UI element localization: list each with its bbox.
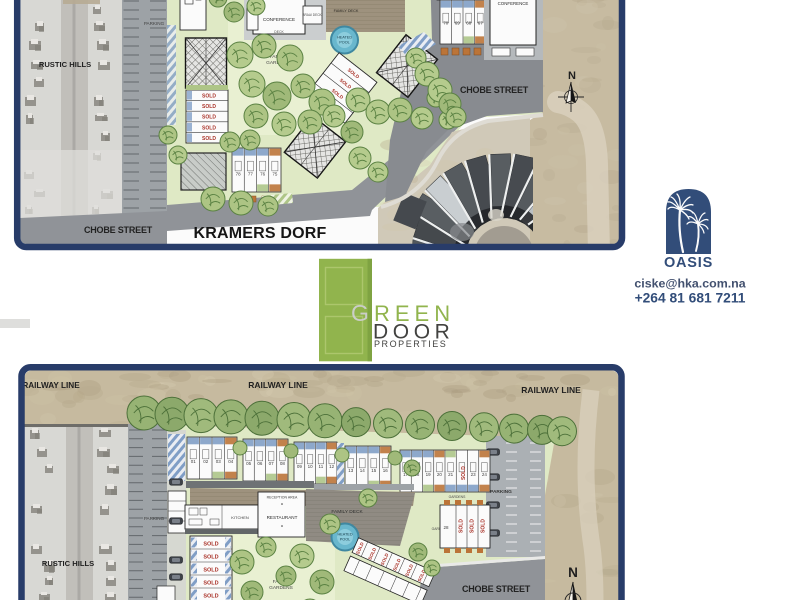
svg-text:CHOBE STREET: CHOBE STREET xyxy=(460,85,529,95)
svg-text:SOLD: SOLD xyxy=(202,115,216,121)
svg-text:21: 21 xyxy=(448,472,454,477)
svg-text:70: 70 xyxy=(443,21,449,26)
svg-text:28: 28 xyxy=(443,525,449,530)
svg-text:PARKING: PARKING xyxy=(144,516,165,521)
svg-text:N: N xyxy=(568,565,578,580)
svg-text:PARKING: PARKING xyxy=(144,21,165,26)
svg-text:08: 08 xyxy=(280,461,286,466)
svg-text:KRAMERS DORF: KRAMERS DORF xyxy=(193,225,326,242)
svg-text:SOLD: SOLD xyxy=(203,555,218,561)
svg-text:SOLD: SOLD xyxy=(203,542,218,548)
svg-text:+264 81 681 7211: +264 81 681 7211 xyxy=(635,291,746,306)
svg-text:24: 24 xyxy=(482,472,488,477)
svg-text:DECK: DECK xyxy=(274,30,284,34)
svg-text:05: 05 xyxy=(246,461,252,466)
svg-text:HEATED: HEATED xyxy=(337,36,352,40)
svg-text:RUSTIC HILLS: RUSTIC HILLS xyxy=(42,559,94,568)
svg-text:12: 12 xyxy=(329,464,335,469)
svg-text:RAILWAY LINE: RAILWAY LINE xyxy=(22,381,80,390)
svg-text:SOLD: SOLD xyxy=(203,594,218,600)
svg-text:BRAAI DECK: BRAAI DECK xyxy=(302,13,322,17)
svg-text:15: 15 xyxy=(371,468,377,473)
svg-text:PROPERTIES: PROPERTIES xyxy=(374,339,447,349)
svg-text:16: 16 xyxy=(383,468,389,473)
svg-text:HEATED: HEATED xyxy=(337,533,352,537)
svg-text:GARDENS: GARDENS xyxy=(449,495,467,499)
svg-text:CONFERENCE: CONFERENCE xyxy=(263,17,295,22)
svg-text:04: 04 xyxy=(228,459,234,464)
svg-text:07: 07 xyxy=(269,461,275,466)
svg-text:67: 67 xyxy=(478,21,484,26)
svg-text:SOLD: SOLD xyxy=(459,519,465,533)
svg-text:68: 68 xyxy=(466,21,472,26)
svg-text:RESTAURANT: RESTAURANT xyxy=(267,515,298,520)
svg-text:11: 11 xyxy=(319,464,324,469)
svg-text:SOLD: SOLD xyxy=(470,519,476,533)
svg-text:20: 20 xyxy=(437,472,443,477)
svg-text:N: N xyxy=(568,70,576,82)
svg-text:10: 10 xyxy=(308,464,314,469)
svg-text:KITCHEN: KITCHEN xyxy=(231,515,249,520)
svg-text:OASIS: OASIS xyxy=(664,255,713,271)
svg-text:FAMILY DECK: FAMILY DECK xyxy=(334,9,359,13)
svg-text:SOLD: SOLD xyxy=(202,125,216,131)
svg-text:SOLD: SOLD xyxy=(203,568,218,574)
svg-text:02: 02 xyxy=(203,459,209,464)
svg-text:23: 23 xyxy=(471,472,477,477)
svg-text:RAILWAY LINE: RAILWAY LINE xyxy=(248,380,308,390)
svg-text:78: 78 xyxy=(236,171,242,176)
svg-text:19: 19 xyxy=(426,472,432,477)
svg-text:FAMILY DECK: FAMILY DECK xyxy=(331,509,363,515)
svg-text:SOLD: SOLD xyxy=(202,136,216,142)
svg-text:01: 01 xyxy=(191,459,197,464)
svg-text:RAILWAY LINE: RAILWAY LINE xyxy=(521,385,581,395)
svg-text:G: G xyxy=(351,300,369,326)
svg-text:03: 03 xyxy=(216,459,222,464)
svg-text:SOLD: SOLD xyxy=(202,94,216,100)
svg-text:14: 14 xyxy=(360,468,366,473)
svg-text:CHOBE STREET: CHOBE STREET xyxy=(462,584,531,594)
svg-text:SOLD: SOLD xyxy=(202,104,216,110)
svg-text:CONFERENCE: CONFERENCE xyxy=(498,1,529,6)
svg-text:13: 13 xyxy=(348,468,354,473)
svg-text:POOL: POOL xyxy=(339,41,350,45)
svg-text:RUSTIC HILLS: RUSTIC HILLS xyxy=(39,60,91,69)
svg-text:PARKING: PARKING xyxy=(490,489,512,495)
svg-text:CHOBE STREET: CHOBE STREET xyxy=(84,225,153,235)
svg-text:09: 09 xyxy=(297,464,303,469)
svg-text:RECEPTION AREA: RECEPTION AREA xyxy=(267,496,298,500)
svg-text:77: 77 xyxy=(248,171,254,176)
svg-text:SOLD: SOLD xyxy=(203,581,218,587)
svg-text:POOL: POOL xyxy=(340,538,351,542)
svg-text:06: 06 xyxy=(257,461,263,466)
svg-text:76: 76 xyxy=(260,171,266,176)
svg-text:75: 75 xyxy=(272,171,278,176)
svg-text:69: 69 xyxy=(455,21,461,26)
svg-text:SOLD: SOLD xyxy=(461,466,467,480)
svg-text:ciske@hka.com.na: ciske@hka.com.na xyxy=(634,277,745,291)
svg-text:SOLD: SOLD xyxy=(481,519,487,533)
